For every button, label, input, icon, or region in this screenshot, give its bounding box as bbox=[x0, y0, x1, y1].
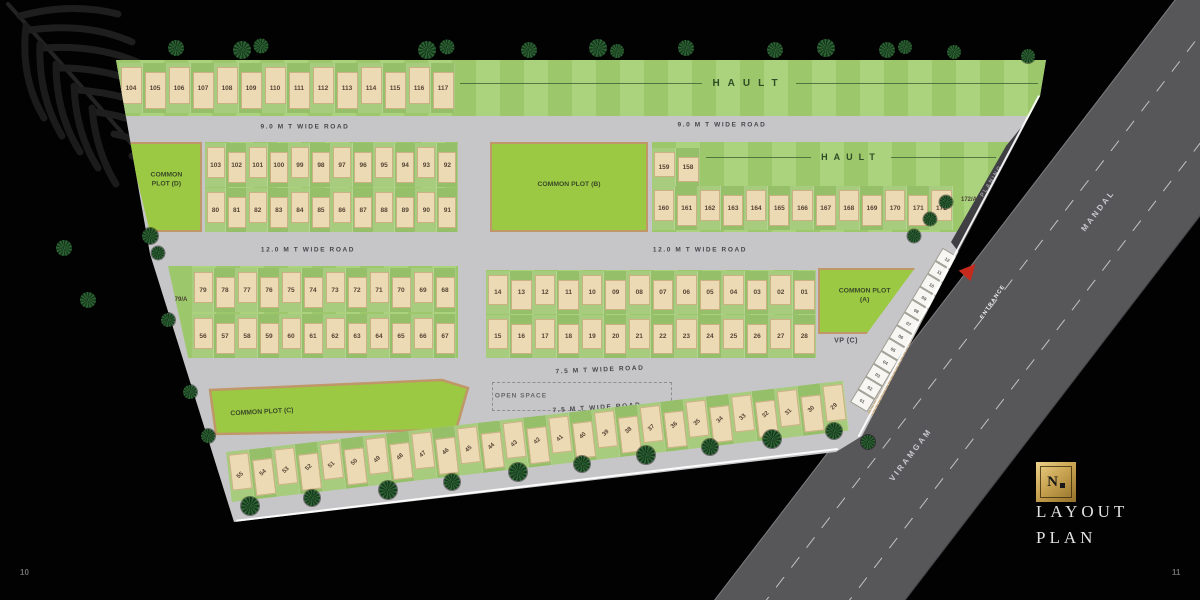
plot-76: 76 bbox=[258, 268, 280, 312]
plot-110: 110 bbox=[263, 63, 287, 113]
plot-number: 17 bbox=[533, 315, 557, 358]
plot-number: 164 bbox=[745, 186, 768, 230]
plot-number: 102 bbox=[226, 143, 247, 187]
plot-number: 100 bbox=[268, 143, 289, 187]
plot-93: 93 bbox=[416, 143, 437, 187]
plot-number: 106 bbox=[167, 63, 191, 113]
plot-103: 103 bbox=[205, 143, 226, 187]
plot-106: 106 bbox=[167, 63, 191, 113]
tree-icon bbox=[947, 45, 961, 59]
plot-number: 72 bbox=[346, 268, 368, 312]
plot-number: 19 bbox=[580, 315, 604, 358]
plot-number: 87 bbox=[353, 188, 374, 232]
tree-icon bbox=[861, 435, 875, 449]
plot-170: 170 bbox=[884, 186, 907, 230]
plot-71: 71 bbox=[368, 268, 390, 312]
plot-108: 108 bbox=[215, 63, 239, 113]
plot-number: 165 bbox=[768, 186, 791, 230]
plot-number: 02 bbox=[769, 271, 793, 314]
plot-number: 28 bbox=[793, 315, 817, 358]
plot-number: 56 bbox=[192, 314, 214, 358]
tree-icon bbox=[637, 446, 655, 464]
plot-row-15-28: 1516171819202122232425262728 bbox=[486, 315, 816, 358]
road-label-12mt-right: 12.0 M T WIDE ROAD bbox=[653, 247, 747, 254]
tree-icon bbox=[56, 240, 72, 256]
plot-number: 82 bbox=[247, 188, 268, 232]
plot-number: 57 bbox=[214, 314, 236, 358]
open-space-label: OPEN SPACE bbox=[495, 393, 547, 400]
common-plot-d-label: COMMON PLOT (D) bbox=[142, 172, 190, 189]
plot-number: 111 bbox=[287, 63, 311, 113]
plot-number: 27 bbox=[769, 315, 793, 358]
plot-number: 108 bbox=[215, 63, 239, 113]
plot-100: 100 bbox=[268, 143, 289, 187]
tree-icon bbox=[879, 42, 895, 58]
plot-number: 103 bbox=[205, 143, 226, 187]
logo-letter: N bbox=[1047, 474, 1058, 491]
plot-number: 101 bbox=[247, 143, 268, 187]
plot-158: 158 bbox=[676, 148, 700, 186]
plot-94: 94 bbox=[395, 143, 416, 187]
common-plot-b-label: COMMON PLOT (B) bbox=[534, 181, 604, 189]
tree-icon bbox=[521, 42, 537, 58]
plot-number: 95 bbox=[374, 143, 395, 187]
plot-number: 71 bbox=[368, 268, 390, 312]
plot-number: 26 bbox=[745, 315, 769, 358]
plot-60: 60 bbox=[280, 314, 302, 358]
plot-number: 20 bbox=[604, 315, 628, 358]
plot-number: 91 bbox=[437, 188, 458, 232]
plot-number: 116 bbox=[407, 63, 431, 113]
plot-10: 10 bbox=[580, 271, 604, 314]
plot-number: 162 bbox=[698, 186, 721, 230]
plot-85: 85 bbox=[310, 188, 331, 232]
plot-64: 64 bbox=[368, 314, 390, 358]
plot-62: 62 bbox=[324, 314, 346, 358]
plot-19: 19 bbox=[580, 315, 604, 358]
tree-icon bbox=[152, 247, 165, 260]
plot-number: 99 bbox=[289, 143, 310, 187]
plot-89: 89 bbox=[395, 188, 416, 232]
plot-07: 07 bbox=[651, 271, 675, 314]
plot-number: 93 bbox=[416, 143, 437, 187]
plot-number: 05 bbox=[698, 271, 722, 314]
plot-12: 12 bbox=[533, 271, 557, 314]
plot-number: 113 bbox=[335, 63, 359, 113]
plot-number: 70 bbox=[390, 268, 412, 312]
tree-icon bbox=[379, 481, 397, 499]
plot-number: 169 bbox=[860, 186, 883, 230]
plot-56: 56 bbox=[192, 314, 214, 358]
plot-number: 63 bbox=[346, 314, 368, 358]
plot-16: 16 bbox=[510, 315, 534, 358]
plot-79a-label: 79/A bbox=[175, 297, 188, 303]
plot-number: 06 bbox=[675, 271, 699, 314]
tree-icon bbox=[589, 39, 607, 57]
plot-117: 117 bbox=[431, 63, 455, 113]
tree-icon bbox=[702, 439, 718, 455]
plot-77: 77 bbox=[236, 268, 258, 312]
plot-row-14-01: 1413121110090807060504030201 bbox=[486, 271, 816, 314]
plot-15: 15 bbox=[486, 315, 510, 358]
tree-icon bbox=[80, 292, 96, 308]
plot-25: 25 bbox=[722, 315, 746, 358]
plot-98: 98 bbox=[310, 143, 331, 187]
plot-number: 80 bbox=[205, 188, 226, 232]
hault-text: HAULT bbox=[821, 152, 881, 162]
plot-number: 107 bbox=[191, 63, 215, 113]
plot-113: 113 bbox=[335, 63, 359, 113]
plot-number: 15 bbox=[486, 315, 510, 358]
plot-80: 80 bbox=[205, 188, 226, 232]
plot-number: 10 bbox=[580, 271, 604, 314]
plot-number: 66 bbox=[412, 314, 434, 358]
plot-number: 03 bbox=[745, 271, 769, 314]
plot-83: 83 bbox=[268, 188, 289, 232]
plot-66: 66 bbox=[412, 314, 434, 358]
plot-159: 159 bbox=[652, 148, 676, 186]
plot-number: 77 bbox=[236, 268, 258, 312]
plot-79: 79 bbox=[192, 268, 214, 312]
plot-number: 22 bbox=[651, 315, 675, 358]
tree-icon bbox=[168, 40, 184, 56]
plot-number: 58 bbox=[236, 314, 258, 358]
plot-number: 67 bbox=[434, 314, 456, 358]
plot-number: 96 bbox=[353, 143, 374, 187]
plot-74: 74 bbox=[302, 268, 324, 312]
plot-number: 98 bbox=[310, 143, 331, 187]
tree-icon bbox=[763, 430, 781, 448]
plot-67: 67 bbox=[434, 314, 456, 358]
plot-number: 78 bbox=[214, 268, 236, 312]
plot-163: 163 bbox=[721, 186, 744, 230]
plot-number: 84 bbox=[289, 188, 310, 232]
plot-number: 21 bbox=[627, 315, 651, 358]
plot-number: 161 bbox=[675, 186, 698, 230]
common-plot-b: COMMON PLOT (B) bbox=[490, 142, 648, 232]
plot-91: 91 bbox=[437, 188, 458, 232]
plot-101: 101 bbox=[247, 143, 268, 187]
road-label-12mt-left: 12.0 M T WIDE ROAD bbox=[261, 247, 355, 254]
logo-title-line2: PLAN bbox=[1036, 528, 1096, 548]
plot-number: 94 bbox=[395, 143, 416, 187]
plot-26: 26 bbox=[745, 315, 769, 358]
plot-number: 64 bbox=[368, 314, 390, 358]
tree-icon bbox=[678, 40, 694, 56]
tree-icon bbox=[908, 230, 921, 243]
tree-icon bbox=[898, 40, 912, 54]
plot-number: 59 bbox=[258, 314, 280, 358]
plot-68: 68 bbox=[434, 268, 456, 312]
layout-plan-page: MANDAL VIRAMGAM 104105106107108109110111… bbox=[0, 0, 1200, 600]
plot-number: 170 bbox=[884, 186, 907, 230]
plot-number: 109 bbox=[239, 63, 263, 113]
tree-icon bbox=[183, 385, 197, 399]
plot-99: 99 bbox=[289, 143, 310, 187]
plot-number: 90 bbox=[416, 188, 437, 232]
plot-number: 04 bbox=[722, 271, 746, 314]
plot-row-104-117: 1041051061071081091101111121131141151161… bbox=[119, 63, 455, 113]
plot-number: 07 bbox=[651, 271, 675, 314]
plot-row-103-92: 1031021011009998979695949392 bbox=[205, 143, 458, 187]
plot-164: 164 bbox=[745, 186, 768, 230]
plot-21: 21 bbox=[627, 315, 651, 358]
plot-112: 112 bbox=[311, 63, 335, 113]
plot-70: 70 bbox=[390, 268, 412, 312]
plot-20: 20 bbox=[604, 315, 628, 358]
plot-number: 112 bbox=[311, 63, 335, 113]
plot-04: 04 bbox=[722, 271, 746, 314]
plot-number: 76 bbox=[258, 268, 280, 312]
plot-82: 82 bbox=[247, 188, 268, 232]
plot-01: 01 bbox=[793, 271, 817, 314]
plot-number: 18 bbox=[557, 315, 581, 358]
plot-number: 08 bbox=[627, 271, 651, 314]
tree-icon bbox=[826, 423, 842, 439]
logo-square-icon bbox=[1060, 483, 1065, 488]
plot-72: 72 bbox=[346, 268, 368, 312]
plot-number: 110 bbox=[263, 63, 287, 113]
plot-95: 95 bbox=[374, 143, 395, 187]
plot-number: 160 bbox=[652, 186, 675, 230]
plot-75: 75 bbox=[280, 268, 302, 312]
plot-row-159-158: 159158 bbox=[652, 148, 700, 186]
hault-text: HAULT bbox=[712, 78, 785, 89]
page-number-right: 11 bbox=[1172, 568, 1180, 577]
road-name-viramgam: VIRAMGAM bbox=[888, 426, 934, 483]
plot-88: 88 bbox=[374, 188, 395, 232]
plot-59: 59 bbox=[258, 314, 280, 358]
plot-57: 57 bbox=[214, 314, 236, 358]
plot-number: 114 bbox=[359, 63, 383, 113]
plot-number: 117 bbox=[431, 63, 455, 113]
plot-22: 22 bbox=[651, 315, 675, 358]
tree-icon bbox=[440, 40, 455, 55]
plot-18: 18 bbox=[557, 315, 581, 358]
plot-number: 16 bbox=[510, 315, 534, 358]
plot-162: 162 bbox=[698, 186, 721, 230]
plot-02: 02 bbox=[769, 271, 793, 314]
tree-icon bbox=[444, 474, 460, 490]
plot-number: 97 bbox=[331, 143, 352, 187]
plot-92: 92 bbox=[437, 143, 458, 187]
plot-169: 169 bbox=[860, 186, 883, 230]
plot-27: 27 bbox=[769, 315, 793, 358]
plot-96: 96 bbox=[353, 143, 374, 187]
plot-05: 05 bbox=[698, 271, 722, 314]
tree-icon bbox=[142, 228, 158, 244]
plot-107: 107 bbox=[191, 63, 215, 113]
tree-icon bbox=[940, 196, 953, 209]
tree-icon bbox=[241, 497, 259, 515]
plot-11: 11 bbox=[557, 271, 581, 314]
plot-69: 69 bbox=[412, 268, 434, 312]
plot-number: 01 bbox=[793, 271, 817, 314]
plot-58: 58 bbox=[236, 314, 258, 358]
plot-111: 111 bbox=[287, 63, 311, 113]
plot-08: 08 bbox=[627, 271, 651, 314]
plot-number: 166 bbox=[791, 186, 814, 230]
plot-number: 163 bbox=[721, 186, 744, 230]
tree-icon bbox=[817, 39, 835, 57]
plot-116: 116 bbox=[407, 63, 431, 113]
tree-icon bbox=[254, 39, 269, 54]
plot-24: 24 bbox=[698, 315, 722, 358]
tree-icon bbox=[1021, 49, 1035, 63]
plot-03: 03 bbox=[745, 271, 769, 314]
plot-number: 85 bbox=[310, 188, 331, 232]
plot-165: 165 bbox=[768, 186, 791, 230]
plot-number: 62 bbox=[324, 314, 346, 358]
plot-90: 90 bbox=[416, 188, 437, 232]
plot-number: 81 bbox=[226, 188, 247, 232]
tree-icon bbox=[767, 42, 783, 58]
plot-17: 17 bbox=[533, 315, 557, 358]
plot-number: 25 bbox=[722, 315, 746, 358]
plot-115: 115 bbox=[383, 63, 407, 113]
plot-number: 11 bbox=[557, 271, 581, 314]
plot-161: 161 bbox=[675, 186, 698, 230]
plot-number: 89 bbox=[395, 188, 416, 232]
plot-number: 69 bbox=[412, 268, 434, 312]
plot-row-56-67: 565758596061626364656667 bbox=[192, 314, 456, 358]
plot-row-79-68: 797877767574737271706968 bbox=[192, 268, 456, 312]
tree-icon bbox=[610, 44, 624, 58]
road-label-9mt-right: 9.0 M T WIDE ROAD bbox=[678, 122, 767, 129]
vp-c-label: VP (C) bbox=[834, 338, 858, 345]
plot-row-80-91: 808182838485868788899091 bbox=[205, 188, 458, 232]
plot-number: 83 bbox=[268, 188, 289, 232]
plot-61: 61 bbox=[302, 314, 324, 358]
plot-86: 86 bbox=[331, 188, 352, 232]
brand-logo: N bbox=[1036, 462, 1076, 502]
plot-number: 92 bbox=[437, 143, 458, 187]
logo-title-line1: LAYOUT bbox=[1036, 502, 1128, 522]
page-number-left: 10 bbox=[20, 568, 29, 577]
plot-14: 14 bbox=[486, 271, 510, 314]
road-name-mandal: MANDAL bbox=[1079, 188, 1116, 233]
plot-number: 73 bbox=[324, 268, 346, 312]
plot-number: 61 bbox=[302, 314, 324, 358]
plot-102: 102 bbox=[226, 143, 247, 187]
tree-icon bbox=[574, 456, 590, 472]
plot-number: 13 bbox=[510, 271, 534, 314]
tree-icon bbox=[924, 213, 937, 226]
hault-label-right: HAULT bbox=[706, 152, 996, 162]
tree-icon bbox=[304, 490, 320, 506]
plot-number: 74 bbox=[302, 268, 324, 312]
plot-84: 84 bbox=[289, 188, 310, 232]
plot-number: 105 bbox=[143, 63, 167, 113]
tree-icon bbox=[509, 463, 527, 481]
plot-number: 168 bbox=[837, 186, 860, 230]
road-label-9mt-left: 9.0 M T WIDE ROAD bbox=[261, 124, 350, 131]
tree-icon bbox=[201, 429, 215, 443]
plot-number: 24 bbox=[698, 315, 722, 358]
plot-number: 115 bbox=[383, 63, 407, 113]
tree-icon bbox=[161, 313, 175, 327]
plot-160: 160 bbox=[652, 186, 675, 230]
plot-166: 166 bbox=[791, 186, 814, 230]
tree-icon bbox=[418, 41, 436, 59]
plot-167: 167 bbox=[814, 186, 837, 230]
plot-73: 73 bbox=[324, 268, 346, 312]
plot-63: 63 bbox=[346, 314, 368, 358]
plot-168: 168 bbox=[837, 186, 860, 230]
plot-number: 75 bbox=[280, 268, 302, 312]
plot-number: 79 bbox=[192, 268, 214, 312]
plot-87: 87 bbox=[353, 188, 374, 232]
plot-number: 12 bbox=[533, 271, 557, 314]
plot-number: 86 bbox=[331, 188, 352, 232]
plot-number: 14 bbox=[486, 271, 510, 314]
plot-number: 65 bbox=[390, 314, 412, 358]
brand-logo-monogram: N bbox=[1040, 466, 1072, 498]
tree-icon bbox=[233, 41, 251, 59]
plot-78: 78 bbox=[214, 268, 236, 312]
plot-number: 158 bbox=[676, 148, 700, 186]
plot-number: 167 bbox=[814, 186, 837, 230]
plot-105: 105 bbox=[143, 63, 167, 113]
plot-81: 81 bbox=[226, 188, 247, 232]
common-plot-a-label: COMMON PLOT (A) bbox=[835, 288, 895, 305]
plot-28: 28 bbox=[793, 315, 817, 358]
plot-number: 09 bbox=[604, 271, 628, 314]
plot-number: 23 bbox=[675, 315, 699, 358]
plot-09: 09 bbox=[604, 271, 628, 314]
plot-row-160-172: 160161162163164165166167168169170171172 bbox=[652, 186, 953, 230]
plot-109: 109 bbox=[239, 63, 263, 113]
plot-13: 13 bbox=[510, 271, 534, 314]
plot-97: 97 bbox=[331, 143, 352, 187]
plot-06: 06 bbox=[675, 271, 699, 314]
plot-23: 23 bbox=[675, 315, 699, 358]
hault-label-top: HAULT bbox=[460, 78, 1038, 89]
plot-number: 159 bbox=[652, 148, 676, 186]
plot-number: 68 bbox=[434, 268, 456, 312]
plot-number: 60 bbox=[280, 314, 302, 358]
plot-114: 114 bbox=[359, 63, 383, 113]
plot-number: 88 bbox=[374, 188, 395, 232]
plot-65: 65 bbox=[390, 314, 412, 358]
